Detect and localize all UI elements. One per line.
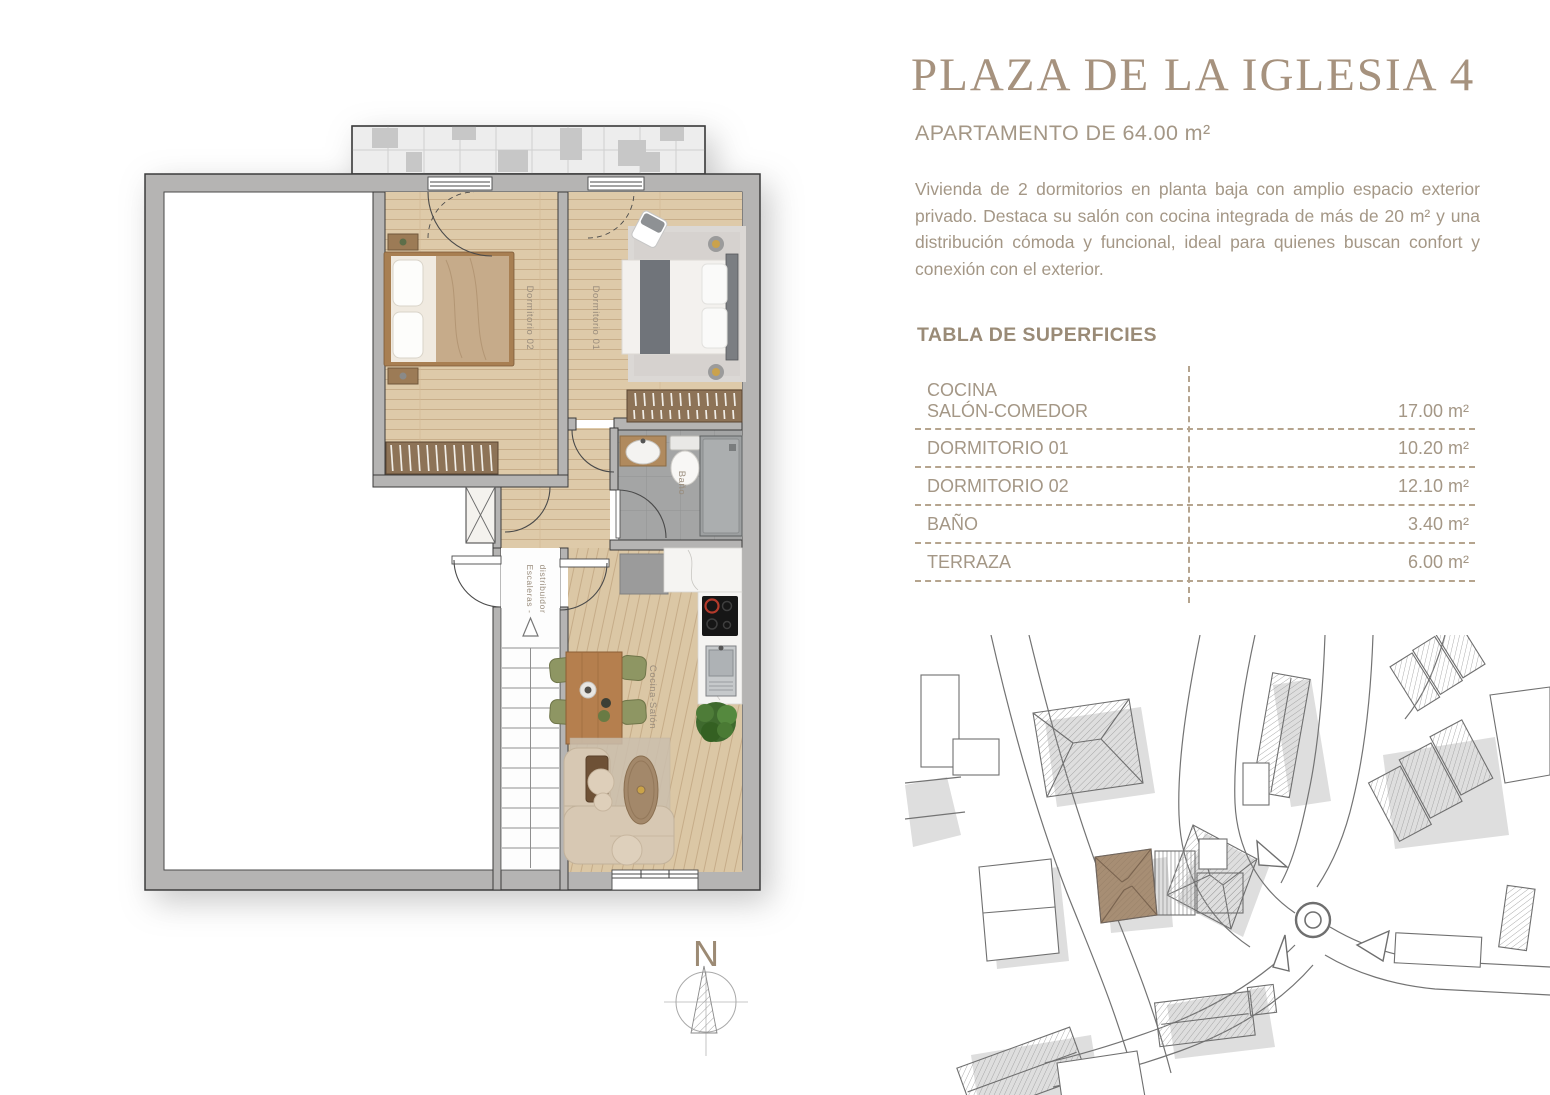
row-label: DORMITORIO 02 (927, 476, 1398, 497)
sofa-area (564, 738, 674, 865)
bathroom-label: Baño (676, 471, 687, 496)
floor-plan: Dormitorio 02 Dormitorio 01 Baño Escaler… (0, 0, 900, 1095)
surface-table-heading: TABLA DE SUPERFICIES (917, 324, 1157, 347)
location-map (905, 635, 1550, 1095)
brochure-page: Dormitorio 02 Dormitorio 01 Baño Escaler… (0, 0, 1550, 1095)
closet (466, 487, 495, 543)
row-label: BAÑO (927, 514, 1408, 535)
plan-drawing: Dormitorio 02 Dormitorio 01 Baño Escaler… (145, 126, 760, 890)
compass: N (664, 933, 748, 1056)
livingroom-label: Cocina-Salón (647, 665, 658, 729)
surface-table: COCINA SALÓN-COMEDOR 17.00 m² DORMITORIO… (915, 364, 1475, 582)
terrace (352, 126, 705, 174)
description-paragraph: Vivienda de 2 dormitorios en planta baja… (915, 176, 1480, 282)
building-hatched (1033, 699, 1143, 797)
table-row: DORMITORIO 02 12.10 m² (915, 468, 1475, 506)
bedroom1-label: Dormitorio 01 (590, 286, 601, 351)
row-label: COCINA SALÓN-COMEDOR (927, 380, 1398, 422)
row-label-line2: SALÓN-COMEDOR (927, 401, 1398, 422)
bedroom2-label: Dormitorio 02 (524, 286, 535, 351)
map-roundabout (1296, 903, 1330, 937)
stairs-label-line1: Escaleras - (525, 564, 535, 613)
row-label-line1: COCINA (927, 380, 1398, 401)
bedroom1-wardrobe (627, 390, 742, 422)
row-value: 10.20 m² (1398, 438, 1469, 459)
bedroom1-furniture (622, 210, 746, 382)
row-value: 6.00 m² (1408, 552, 1469, 573)
bedroom2-bed (384, 234, 514, 384)
row-value: 12.10 m² (1398, 476, 1469, 497)
row-label: TERRAZA (927, 552, 1408, 573)
highlighted-building (1095, 849, 1157, 923)
stairs-label-line2: distribuidor (538, 565, 548, 614)
table-row: BAÑO 3.40 m² (915, 506, 1475, 544)
compass-needle (691, 966, 717, 1033)
bedroom2-wardrobe (386, 442, 498, 474)
table-row: COCINA SALÓN-COMEDOR 17.00 m² (915, 364, 1475, 430)
building-row (1388, 635, 1487, 711)
map-buildings (921, 635, 1550, 1095)
table-row: TERRAZA 6.00 m² (915, 544, 1475, 582)
page-title: PLAZA DE LA IGLESIA 4 (911, 48, 1475, 102)
table-row: DORMITORIO 01 10.20 m² (915, 430, 1475, 468)
page-subtitle: APARTAMENTO DE 64.00 m² (915, 121, 1211, 146)
row-value: 3.40 m² (1408, 514, 1469, 535)
compass-north-label: N (693, 933, 719, 974)
row-value: 17.00 m² (1398, 401, 1469, 422)
row-label: DORMITORIO 01 (927, 438, 1398, 459)
